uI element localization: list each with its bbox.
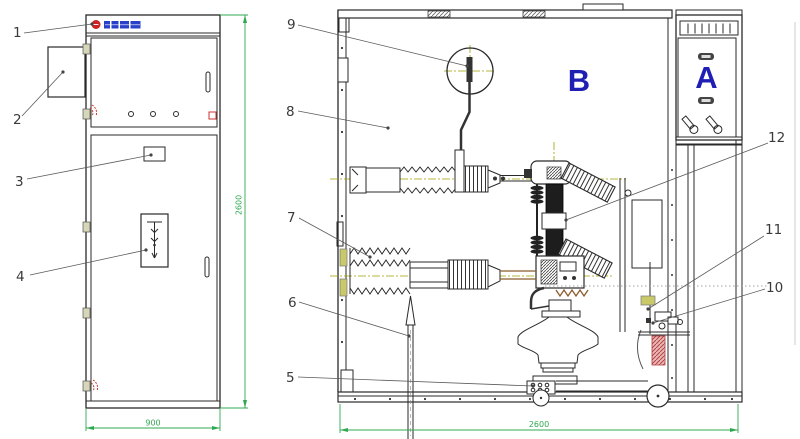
side-roof <box>338 10 672 18</box>
upper-post-insulator <box>561 163 615 202</box>
side-view: A B <box>330 4 795 439</box>
callout-12-label: 12 <box>768 130 785 146</box>
upper-bushing <box>350 150 533 193</box>
callout-4: 4 <box>16 248 148 285</box>
drawing-svg: 900 2600 <box>0 0 800 439</box>
dim-front-width: 900 <box>145 419 160 428</box>
wall-bolts <box>341 47 343 373</box>
mechanism-panel <box>632 200 662 268</box>
front-cabinet-outline <box>86 15 220 408</box>
interlock-plate <box>652 336 665 365</box>
upper-door-handle <box>206 72 210 92</box>
callout-12: 12 <box>564 130 785 222</box>
dim-side-depth: 2600 <box>529 420 549 429</box>
callout-6-label: 6 <box>288 295 297 311</box>
nameplate <box>144 147 165 161</box>
top-bushing <box>444 45 496 152</box>
pole-mid-box <box>542 213 566 229</box>
lower-door <box>91 135 217 401</box>
lv-key <box>705 115 724 135</box>
callout-4-label: 4 <box>16 269 25 285</box>
lower-door-handle <box>205 257 209 277</box>
roof-box <box>583 4 623 10</box>
callout-1-label: 1 <box>13 25 22 41</box>
mimic-panel <box>141 214 168 267</box>
cable <box>406 296 415 439</box>
support-insulator <box>518 300 669 407</box>
indicator-holes <box>129 112 179 117</box>
callout-3-label: 3 <box>15 174 24 190</box>
callout-9: 9 <box>287 17 469 68</box>
callout-11-label: 11 <box>765 222 782 238</box>
engineering-drawing: 900 2600 <box>0 0 800 439</box>
breaker-pole <box>524 161 631 332</box>
compartment-b-label: B <box>568 63 590 98</box>
callout-8-label: 8 <box>286 104 295 120</box>
callout-7: 7 <box>287 210 372 259</box>
callout-1: 1 <box>13 22 94 41</box>
callout-11: 11 <box>646 222 782 311</box>
callout-10-label: 10 <box>766 280 783 296</box>
side-dimensions: 2600 <box>340 404 738 433</box>
upper-door <box>91 38 217 127</box>
callout-2-label: 2 <box>13 112 22 128</box>
lv-compartment: A <box>676 10 742 144</box>
side-mounted-box <box>48 47 85 97</box>
callout-6: 6 <box>288 295 411 338</box>
callout-7-label: 7 <box>287 210 296 226</box>
brand-logo <box>92 20 141 29</box>
mechanism <box>632 200 690 369</box>
compartment-a-label: A <box>695 60 717 95</box>
callout-3: 3 <box>15 153 153 190</box>
roof-vent <box>428 11 450 17</box>
callout-2: 2 <box>13 70 65 128</box>
frame-bolts <box>671 169 673 379</box>
callout-9-label: 9 <box>287 17 296 33</box>
brand-text <box>104 21 141 29</box>
front-view <box>48 15 220 408</box>
callout-5-label: 5 <box>286 370 295 386</box>
roof-vent <box>523 11 545 17</box>
lower-bushing <box>350 248 536 294</box>
lv-key <box>681 115 700 135</box>
dim-front-height: 2600 <box>235 195 244 215</box>
